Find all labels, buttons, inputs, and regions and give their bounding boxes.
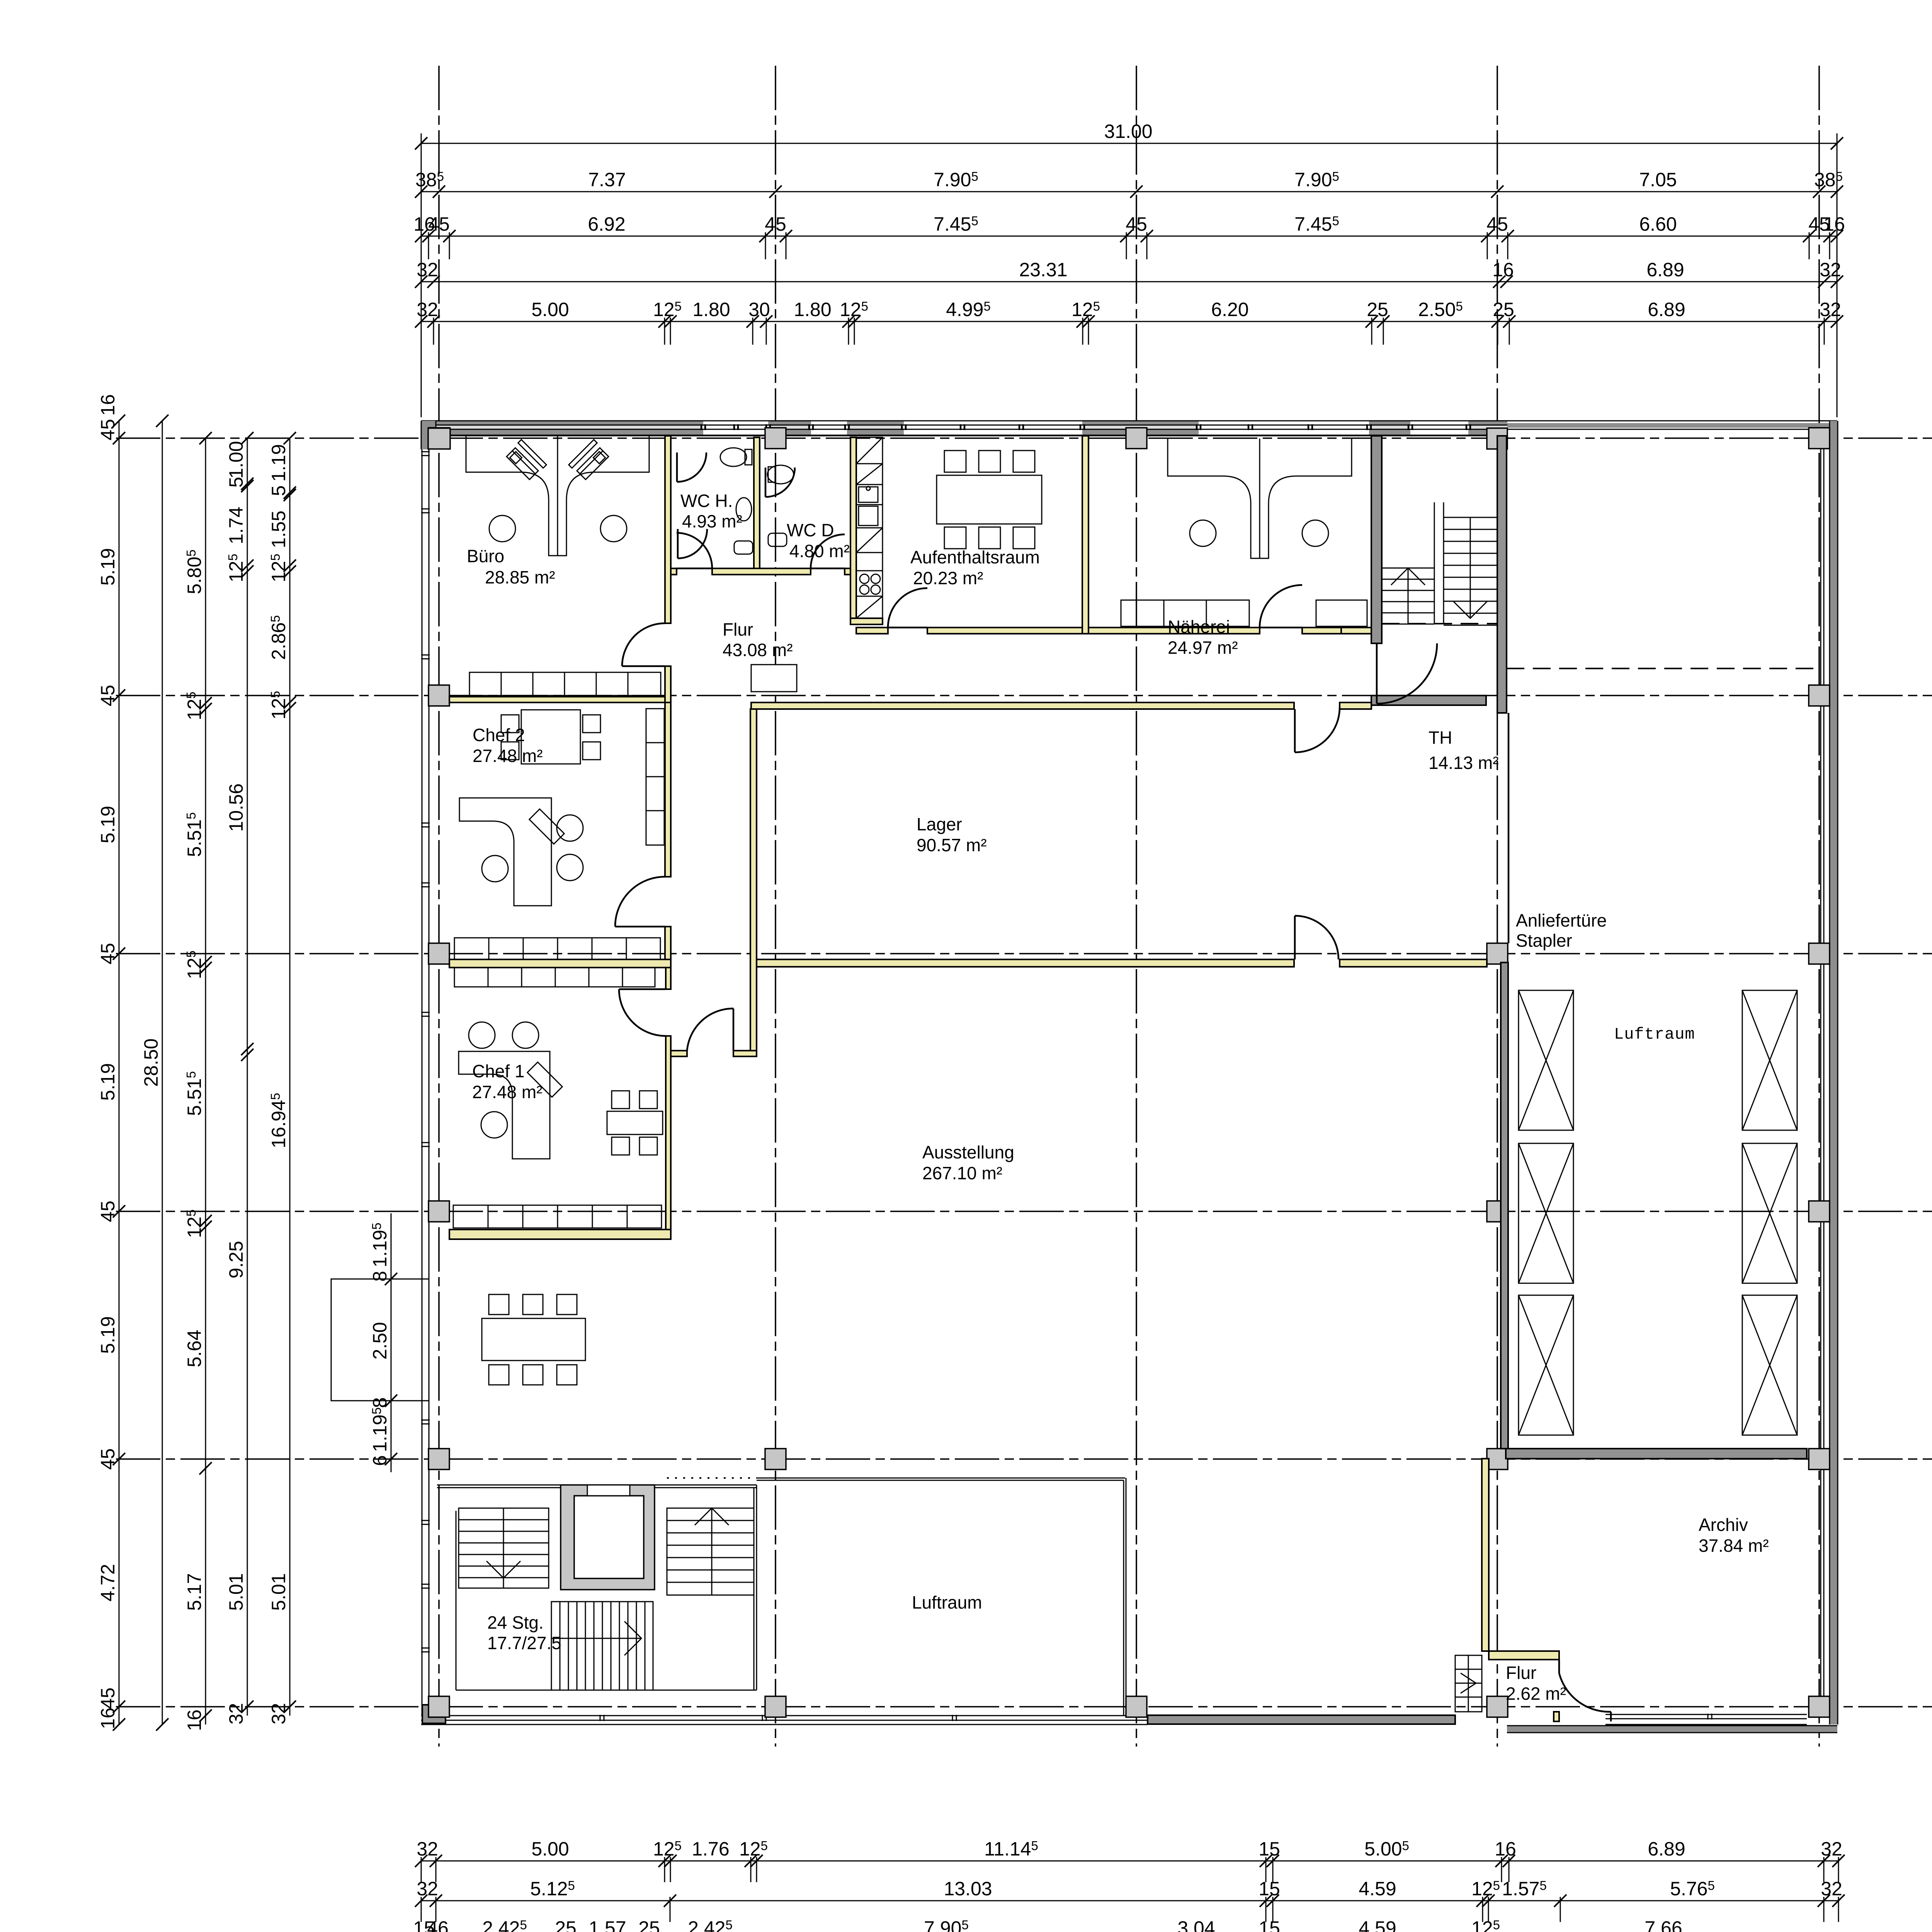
- svg-text:2.50: 2.50: [369, 1322, 391, 1359]
- svg-text:45: 45: [1486, 213, 1508, 235]
- svg-text:Archiv: Archiv: [1699, 1515, 1748, 1535]
- svg-text:32: 32: [1821, 1838, 1842, 1860]
- svg-text:15: 15: [1259, 1878, 1280, 1900]
- svg-text:16: 16: [1495, 1838, 1516, 1860]
- svg-text:Flur: Flur: [1506, 1663, 1536, 1683]
- svg-text:Anliefertüre: Anliefertüre: [1516, 910, 1607, 930]
- svg-text:45: 45: [1126, 213, 1147, 235]
- svg-text:15: 15: [1259, 1917, 1280, 1932]
- svg-text:Aufenthaltsraum: Aufenthaltsraum: [910, 547, 1040, 567]
- svg-text:45: 45: [97, 419, 119, 440]
- svg-text:32: 32: [417, 1838, 438, 1860]
- svg-text:1.76: 1.76: [692, 1838, 729, 1860]
- svg-text:6.89: 6.89: [1646, 259, 1684, 281]
- svg-text:45: 45: [97, 1448, 119, 1470]
- svg-text:5.19: 5.19: [97, 806, 119, 843]
- svg-text:32: 32: [1820, 299, 1841, 320]
- svg-text:9.25: 9.25: [225, 1241, 247, 1278]
- svg-text:1.74: 1.74: [225, 507, 247, 544]
- svg-text:14.13 m²: 14.13 m²: [1429, 753, 1499, 773]
- svg-text:24.97 m²: 24.97 m²: [1168, 638, 1238, 658]
- svg-text:TH: TH: [1429, 728, 1452, 748]
- svg-text:16: 16: [97, 394, 119, 416]
- svg-text:Ausstellung: Ausstellung: [922, 1142, 1014, 1162]
- svg-text:28.50: 28.50: [140, 1038, 162, 1087]
- svg-text:25: 25: [1493, 299, 1514, 320]
- svg-text:Luftraum: Luftraum: [912, 1592, 982, 1612]
- svg-text:Luftraum: Luftraum: [1614, 1025, 1695, 1044]
- svg-text:10.56: 10.56: [225, 783, 247, 832]
- svg-text:45: 45: [97, 943, 119, 964]
- svg-text:125: 125: [1471, 1917, 1500, 1932]
- svg-text:4.59: 4.59: [1359, 1878, 1396, 1900]
- svg-text:5: 5: [225, 477, 247, 488]
- svg-text:16: 16: [97, 1708, 119, 1729]
- svg-text:2.62 m²: 2.62 m²: [1506, 1684, 1566, 1704]
- svg-text:Stapler: Stapler: [1516, 930, 1572, 951]
- svg-text:2.425: 2.425: [688, 1917, 733, 1932]
- svg-text:90.57 m²: 90.57 m²: [917, 835, 987, 855]
- svg-text:5.19: 5.19: [97, 1063, 119, 1100]
- svg-text:37.84 m²: 37.84 m²: [1699, 1536, 1769, 1556]
- svg-text:1.19: 1.19: [268, 444, 289, 481]
- svg-text:1.00: 1.00: [225, 441, 247, 478]
- svg-text:5: 5: [268, 485, 289, 496]
- svg-text:5.19: 5.19: [97, 548, 119, 585]
- svg-text:16: 16: [1492, 259, 1514, 281]
- svg-text:45: 45: [97, 1687, 119, 1709]
- svg-text:31.00: 31.00: [1104, 121, 1152, 142]
- svg-text:45: 45: [765, 213, 786, 235]
- svg-text:46: 46: [427, 1917, 449, 1932]
- svg-text:8: 8: [369, 1271, 391, 1282]
- svg-text:32: 32: [417, 1878, 438, 1900]
- svg-text:23.31: 23.31: [1019, 259, 1067, 281]
- svg-text:6.20: 6.20: [1211, 299, 1248, 320]
- svg-text:15: 15: [1259, 1838, 1280, 1860]
- svg-text:30: 30: [748, 299, 770, 320]
- svg-text:5.00: 5.00: [531, 299, 569, 320]
- svg-text:45: 45: [97, 1201, 119, 1222]
- svg-text:43.08 m²: 43.08 m²: [723, 640, 793, 660]
- svg-text:25: 25: [555, 1917, 577, 1932]
- svg-text:6.92: 6.92: [588, 213, 625, 235]
- svg-text:6.89: 6.89: [1648, 1838, 1685, 1860]
- svg-text:Büro: Büro: [467, 546, 504, 566]
- svg-text:13.03: 13.03: [944, 1878, 992, 1900]
- svg-text:32: 32: [1820, 259, 1841, 281]
- svg-text:7.37: 7.37: [588, 169, 626, 190]
- svg-text:5.19: 5.19: [97, 1316, 119, 1354]
- svg-text:3.04: 3.04: [1177, 1917, 1215, 1932]
- svg-text:5.00: 5.00: [531, 1838, 569, 1860]
- svg-text:6.60: 6.60: [1639, 213, 1677, 235]
- svg-text:Chef 2: Chef 2: [473, 725, 525, 745]
- svg-text:8: 8: [369, 1397, 391, 1408]
- svg-text:5.01: 5.01: [268, 1573, 289, 1611]
- svg-text:45: 45: [428, 213, 450, 235]
- svg-text:WC H.: WC H.: [680, 491, 733, 511]
- svg-text:1.80: 1.80: [794, 299, 831, 320]
- svg-text:25: 25: [1367, 299, 1388, 320]
- svg-text:17.7/27.5: 17.7/27.5: [487, 1633, 561, 1653]
- svg-text:11.145: 11.145: [984, 1838, 1038, 1860]
- svg-text:1.55: 1.55: [268, 510, 289, 548]
- svg-text:27.48 m²: 27.48 m²: [472, 1082, 543, 1102]
- svg-text:4.80 m²: 4.80 m²: [789, 541, 850, 561]
- svg-text:16: 16: [1823, 213, 1845, 235]
- svg-text:267.10 m²: 267.10 m²: [922, 1163, 1002, 1183]
- svg-text:WC D.: WC D.: [787, 520, 839, 540]
- svg-text:7.905: 7.905: [924, 1917, 969, 1932]
- svg-text:24 Stg.: 24 Stg.: [487, 1612, 544, 1633]
- svg-text:6: 6: [369, 1455, 391, 1466]
- svg-text:28.85 m²: 28.85 m²: [485, 567, 555, 587]
- svg-text:4.59: 4.59: [1359, 1917, 1396, 1932]
- svg-text:5.01: 5.01: [225, 1573, 247, 1611]
- svg-text:4.93 m²: 4.93 m²: [682, 511, 742, 531]
- svg-text:16: 16: [184, 1709, 205, 1731]
- svg-text:5.64: 5.64: [184, 1330, 205, 1367]
- svg-text:2.425: 2.425: [482, 1917, 527, 1932]
- svg-text:32: 32: [1821, 1878, 1842, 1900]
- svg-text:7.66: 7.66: [1645, 1917, 1682, 1932]
- svg-text:6.89: 6.89: [1648, 299, 1685, 320]
- svg-text:5.17: 5.17: [184, 1573, 205, 1611]
- svg-text:27.48 m²: 27.48 m²: [473, 746, 543, 766]
- svg-text:32: 32: [417, 259, 438, 281]
- svg-text:7.05: 7.05: [1639, 169, 1677, 190]
- svg-text:Lager: Lager: [917, 814, 962, 834]
- svg-text:4.72: 4.72: [97, 1564, 119, 1601]
- svg-text:16.945: 16.945: [268, 1093, 289, 1148]
- svg-text:25: 25: [638, 1917, 660, 1932]
- svg-text:32: 32: [225, 1703, 247, 1725]
- svg-text:1.57: 1.57: [588, 1917, 626, 1932]
- svg-text:20.23 m²: 20.23 m²: [913, 568, 983, 588]
- svg-text:32: 32: [417, 299, 438, 320]
- svg-text:45: 45: [97, 685, 119, 706]
- svg-text:Näherei: Näherei: [1168, 617, 1230, 637]
- svg-text:1.80: 1.80: [692, 299, 730, 320]
- svg-text:Flur: Flur: [723, 619, 753, 639]
- svg-text:Chef 1: Chef 1: [472, 1061, 525, 1081]
- svg-text:32: 32: [268, 1703, 289, 1725]
